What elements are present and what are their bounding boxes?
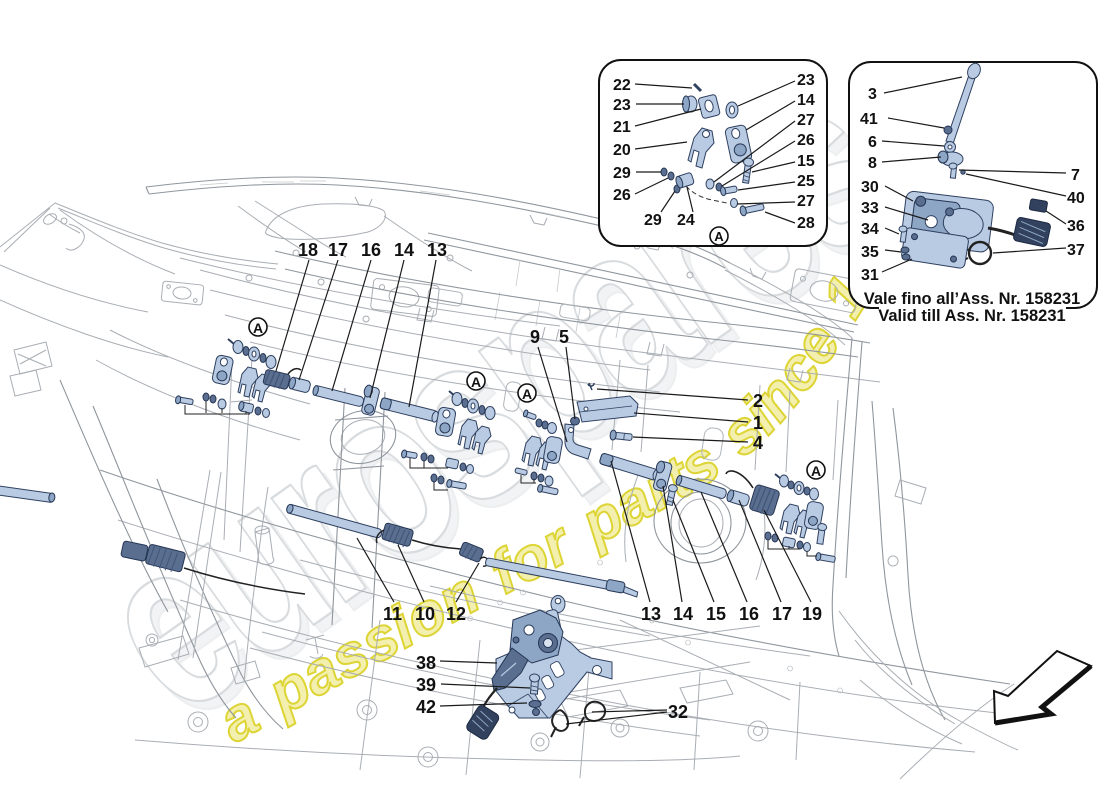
svg-text:28: 28 (797, 215, 815, 232)
svg-text:20: 20 (613, 142, 631, 159)
svg-text:Valid till Ass. Nr. 158231: Valid till Ass. Nr. 158231 (878, 307, 1065, 325)
svg-text:33: 33 (861, 200, 879, 217)
svg-text:27: 27 (797, 193, 815, 210)
svg-text:A: A (253, 320, 263, 336)
svg-text:38: 38 (416, 653, 436, 673)
svg-text:31: 31 (861, 267, 879, 284)
svg-text:13: 13 (641, 604, 661, 624)
svg-text:37: 37 (1067, 242, 1085, 259)
svg-text:18: 18 (298, 240, 318, 260)
svg-text:14: 14 (797, 92, 815, 109)
svg-text:A: A (811, 463, 821, 479)
svg-text:14: 14 (394, 240, 414, 260)
svg-text:39: 39 (416, 675, 436, 695)
svg-text:26: 26 (797, 132, 815, 149)
svg-text:25: 25 (797, 173, 815, 190)
svg-text:15: 15 (706, 604, 726, 624)
svg-text:30: 30 (861, 179, 879, 196)
svg-text:A: A (471, 374, 481, 390)
svg-text:32: 32 (668, 702, 688, 722)
svg-text:A: A (522, 386, 532, 402)
svg-text:17: 17 (328, 240, 348, 260)
svg-text:12: 12 (446, 604, 466, 624)
svg-text:Vale fino all’Ass. Nr. 158231: Vale fino all’Ass. Nr. 158231 (864, 290, 1080, 308)
svg-text:9: 9 (530, 327, 540, 347)
svg-text:27: 27 (797, 112, 815, 129)
svg-text:16: 16 (361, 240, 381, 260)
svg-text:26: 26 (613, 187, 631, 204)
svg-text:29: 29 (613, 165, 631, 182)
svg-text:13: 13 (427, 240, 447, 260)
svg-text:8: 8 (868, 155, 877, 172)
svg-text:19: 19 (802, 604, 822, 624)
svg-text:41: 41 (860, 111, 878, 128)
svg-text:3: 3 (868, 86, 877, 103)
svg-text:36: 36 (1067, 218, 1085, 235)
svg-text:11: 11 (383, 604, 402, 624)
svg-text:6: 6 (868, 134, 877, 151)
svg-text:17: 17 (772, 604, 792, 624)
svg-text:15: 15 (797, 153, 815, 170)
svg-text:4: 4 (753, 433, 763, 453)
svg-text:23: 23 (797, 72, 815, 89)
svg-text:16: 16 (739, 604, 759, 624)
svg-text:29: 29 (644, 212, 662, 229)
svg-text:5: 5 (559, 327, 569, 347)
svg-text:7: 7 (1071, 167, 1080, 184)
svg-text:10: 10 (415, 604, 435, 624)
svg-text:24: 24 (677, 212, 695, 229)
svg-text:23: 23 (613, 97, 631, 114)
svg-text:40: 40 (1067, 190, 1085, 207)
svg-text:1: 1 (753, 413, 763, 433)
svg-text:A: A (714, 229, 724, 244)
svg-text:14: 14 (673, 604, 693, 624)
svg-text:22: 22 (613, 77, 631, 94)
svg-text:34: 34 (861, 221, 879, 238)
svg-text:35: 35 (861, 244, 879, 261)
svg-text:21: 21 (613, 119, 631, 136)
svg-text:2: 2 (753, 391, 763, 411)
svg-text:42: 42 (416, 697, 436, 717)
